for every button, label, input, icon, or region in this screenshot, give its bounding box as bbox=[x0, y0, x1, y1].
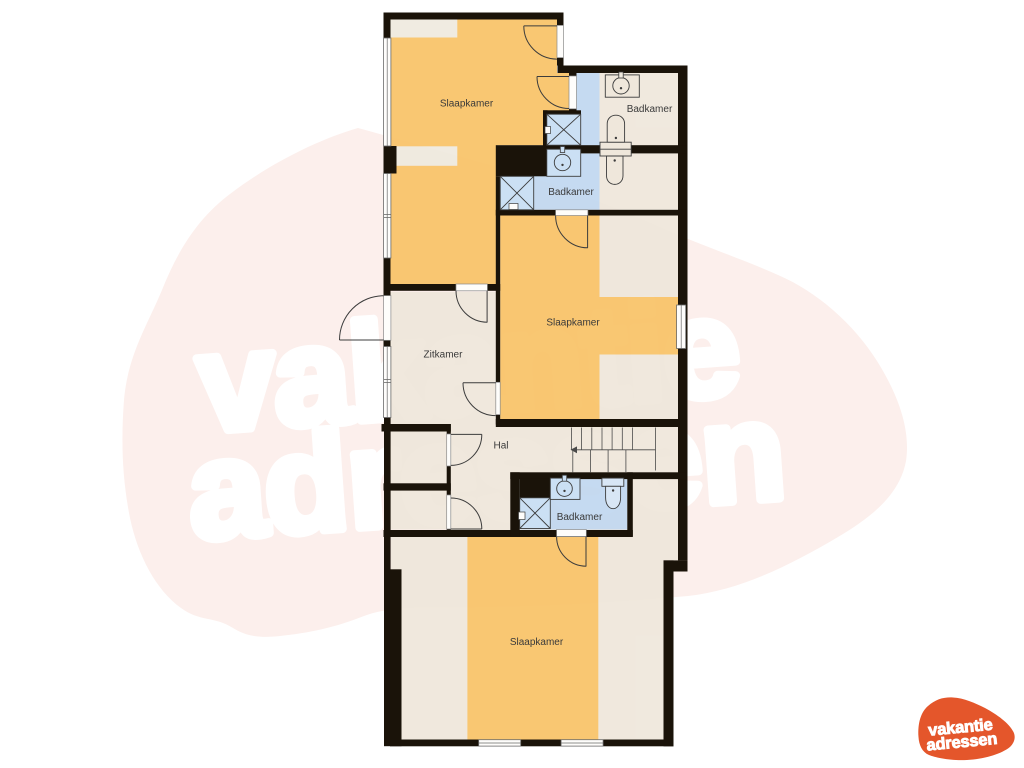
svg-text:Badkamer: Badkamer bbox=[557, 512, 603, 523]
svg-text:Zitkamer: Zitkamer bbox=[424, 350, 464, 361]
svg-text:Hal: Hal bbox=[493, 440, 508, 451]
svg-text:Badkamer: Badkamer bbox=[627, 104, 673, 115]
svg-text:Slaapkamer: Slaapkamer bbox=[510, 637, 564, 648]
svg-text:Badkamer: Badkamer bbox=[548, 187, 594, 198]
svg-text:Slaapkamer: Slaapkamer bbox=[440, 99, 494, 110]
svg-text:Slaapkamer: Slaapkamer bbox=[546, 318, 600, 329]
